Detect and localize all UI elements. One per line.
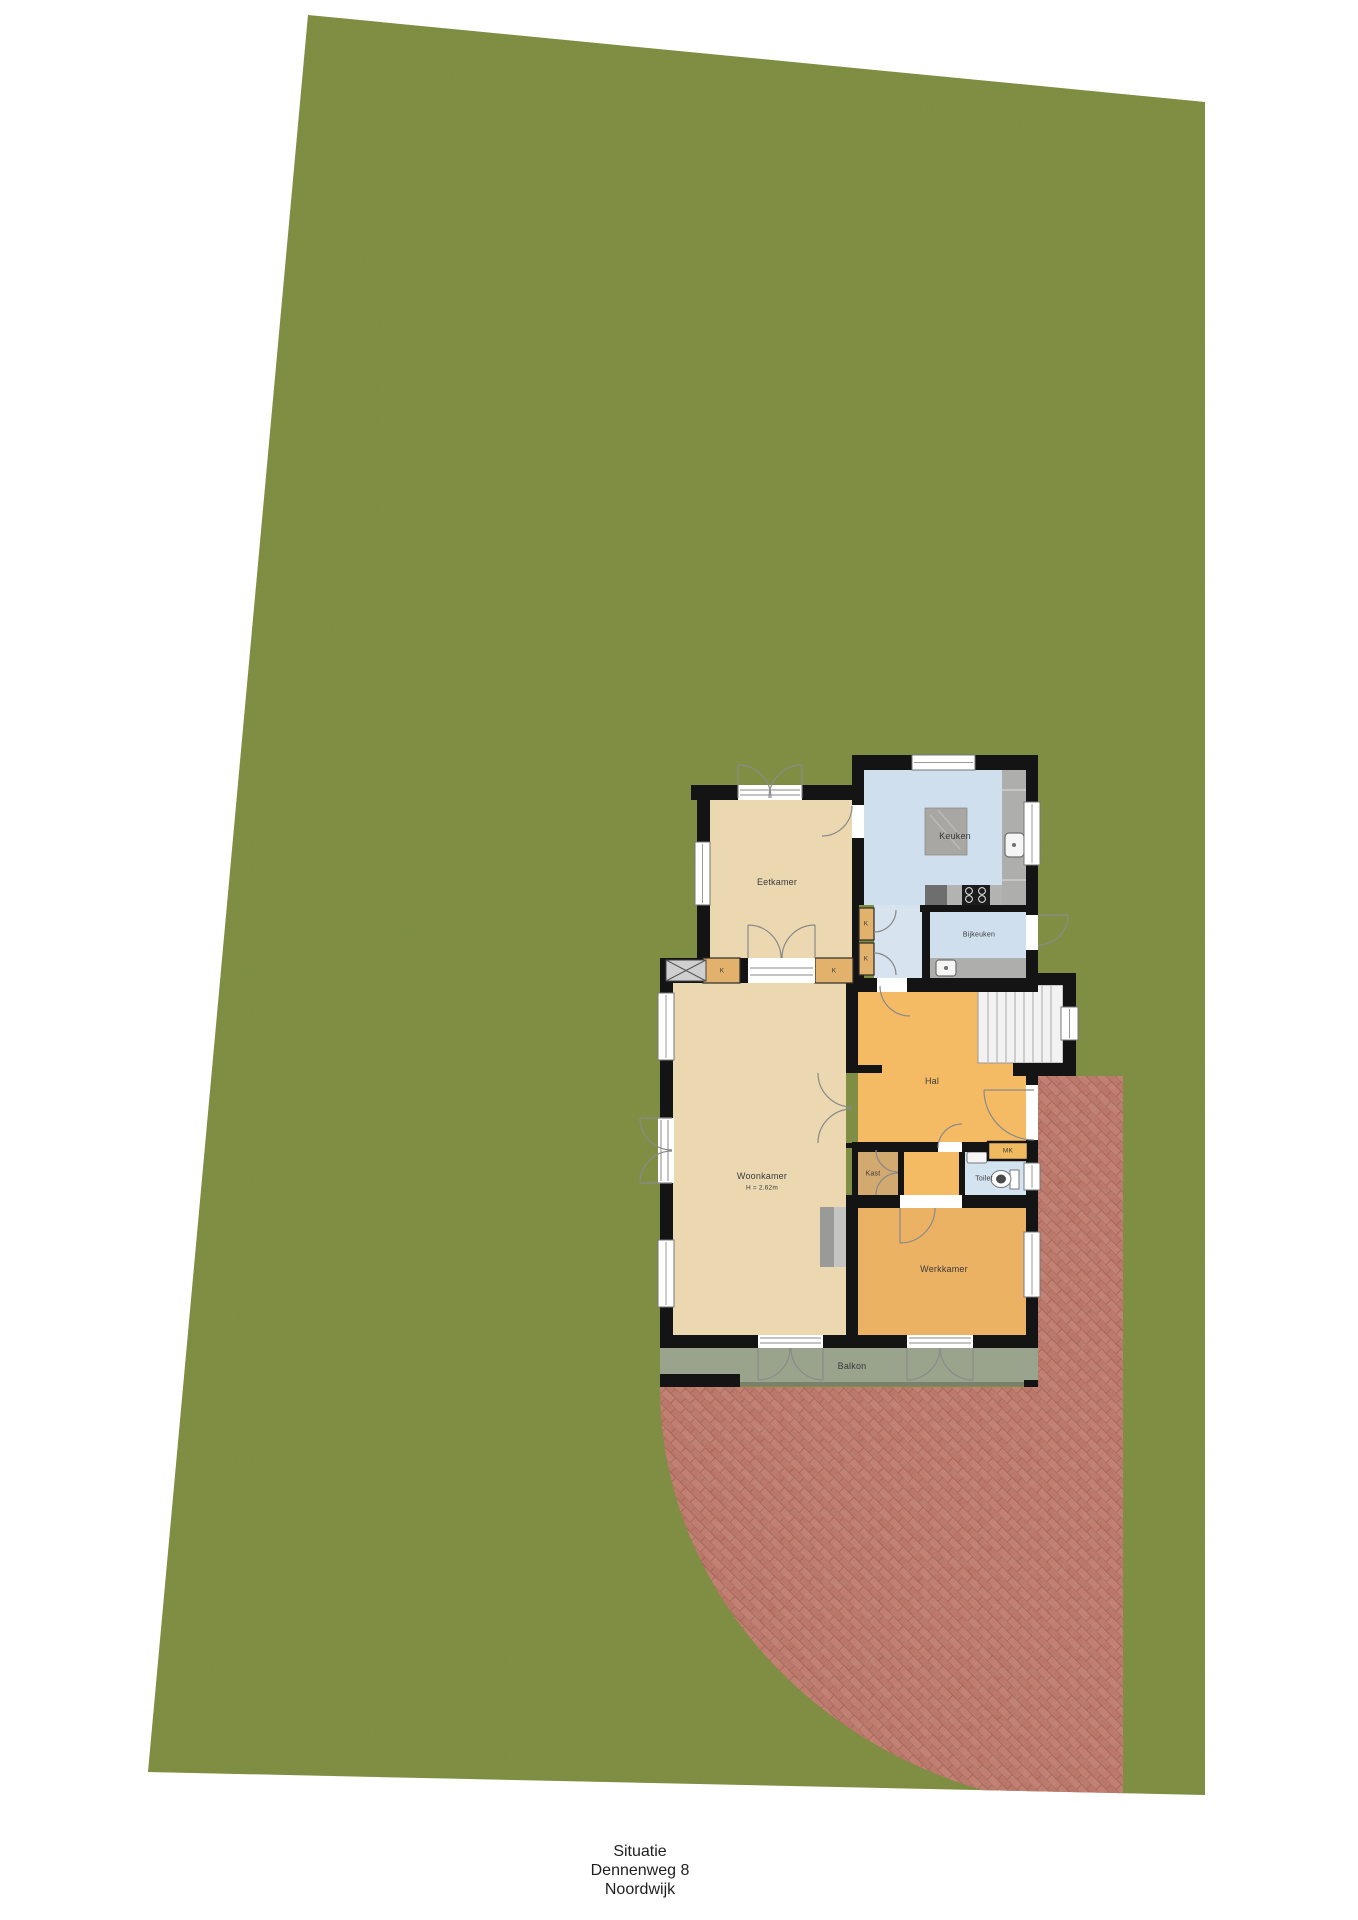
label-bijkeuken: Bijkeuken [963, 932, 995, 939]
label-k: K [832, 968, 837, 975]
label-balkon: Balkon [838, 1361, 867, 1371]
plan-caption: Situatie Dennenweg 8 Noordwijk [490, 1842, 790, 1899]
situatie-plan-page: Eetkamer Keuken Bijkeuken Hal Woonkamer … [0, 0, 1358, 1920]
staircase [978, 985, 1063, 1063]
label-kast: Kast [866, 1171, 881, 1178]
caption-street: Dennenweg 8 [490, 1861, 790, 1880]
passage-floor [874, 905, 922, 985]
label-werkkamer: Werkkamer [920, 1264, 968, 1274]
label-hal: Hal [925, 1076, 939, 1086]
label-woonkamer: Woonkamer [737, 1171, 787, 1181]
label-k: K [720, 968, 725, 975]
flue-hatch [666, 960, 706, 981]
label-k: K [864, 956, 869, 963]
label-mk: MK [1003, 1148, 1013, 1155]
kitchen-counter-dark [925, 885, 947, 905]
label-keuken: Keuken [939, 831, 971, 841]
situatie-drawing [0, 0, 1358, 1920]
label-woonkamer-height: H = 2.62m [746, 1185, 778, 1192]
stove [962, 885, 990, 905]
caption-title: Situatie [490, 1842, 790, 1861]
fireplace [820, 1207, 846, 1267]
label-k: K [864, 921, 869, 928]
hal-corridor-floor [904, 1148, 959, 1200]
label-toilet: Toilet [975, 1176, 993, 1183]
toilet-sink [967, 1152, 987, 1163]
label-eetkamer: Eetkamer [757, 877, 797, 887]
room-woonkamer-floor [673, 983, 846, 1335]
caption-city: Noordwijk [490, 1880, 790, 1899]
